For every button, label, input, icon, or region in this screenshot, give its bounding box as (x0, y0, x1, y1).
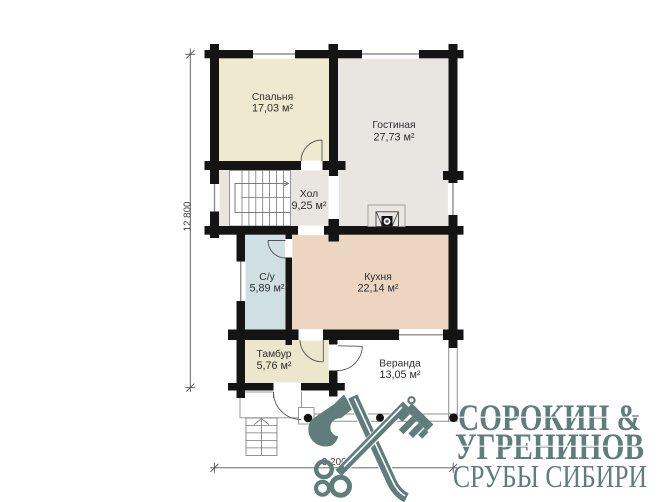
svg-text:Кухня: Кухня (364, 272, 392, 283)
svg-text:5,89 м²: 5,89 м² (249, 283, 284, 295)
svg-text:13,05 м²: 13,05 м² (379, 369, 420, 381)
svg-text:5,76 м²: 5,76 м² (256, 360, 291, 372)
svg-text:17,03 м²: 17,03 м² (252, 103, 293, 115)
svg-text:12 800: 12 800 (183, 201, 194, 232)
svg-text:27,73 м²: 27,73 м² (373, 132, 414, 144)
svg-text:Спальня: Спальня (252, 92, 293, 103)
svg-text:СРУБЫ СИБИРИ: СРУБЫ СИБИРИ (453, 458, 647, 494)
svg-text:С/у: С/у (259, 272, 275, 283)
svg-text:9,25 м²: 9,25 м² (291, 200, 326, 212)
svg-text:Веранда: Веранда (379, 359, 421, 370)
svg-text:22,14 м²: 22,14 м² (357, 283, 398, 295)
svg-text:Хол: Хол (300, 189, 318, 200)
svg-text:Тамбур: Тамбур (257, 348, 292, 360)
svg-text:Гостиная: Гостиная (372, 120, 415, 131)
